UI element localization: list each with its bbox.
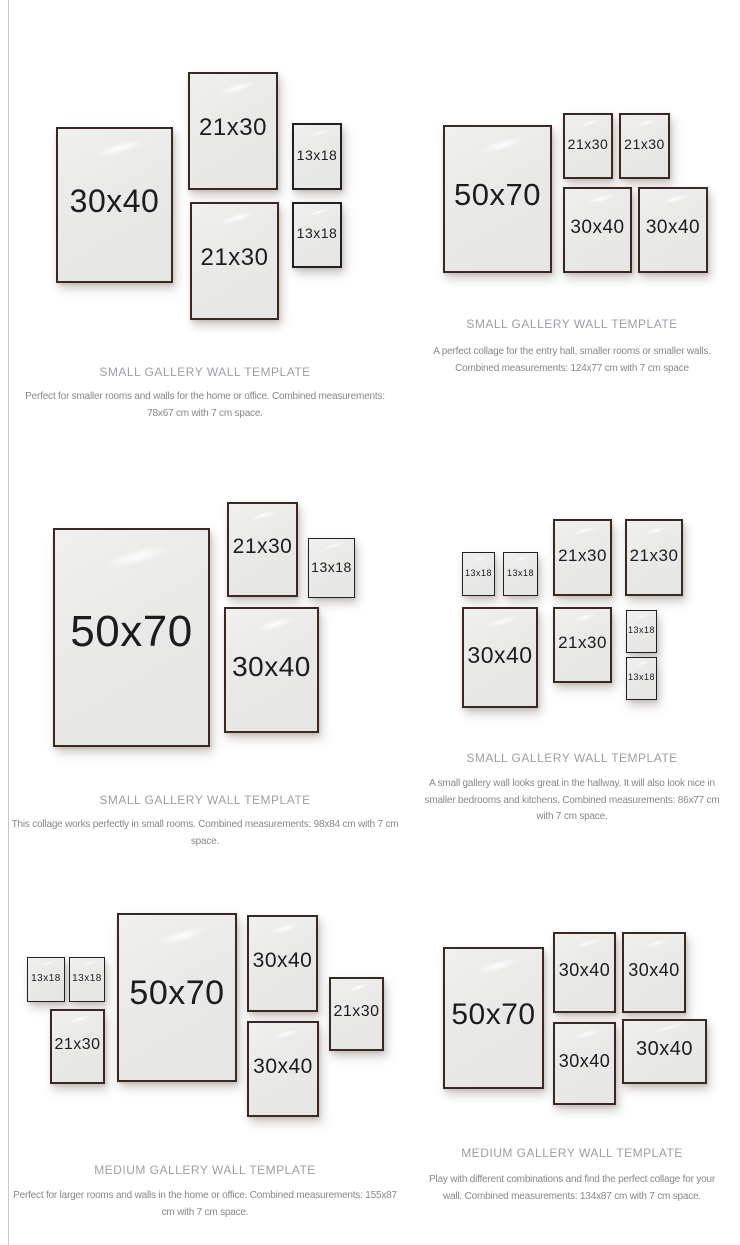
- picture-frame-13x18: 13x18: [503, 552, 538, 596]
- frame-size-label: 30x40: [559, 1051, 611, 1072]
- picture-frame-21x30: 21x30: [188, 72, 278, 190]
- frame-size-label: 13x18: [297, 147, 338, 163]
- frame-size-label: 21x30: [233, 535, 293, 559]
- picture-frame-30x40: 30x40: [553, 1022, 616, 1105]
- frame-size-label: 30x40: [628, 960, 680, 981]
- frame-size-label: 13x18: [507, 568, 534, 578]
- frame-size-label: 13x18: [31, 973, 61, 984]
- frame-size-label: 13x18: [465, 568, 492, 578]
- frame-size-label: 30x40: [467, 642, 532, 669]
- picture-frame-21x30: 21x30: [553, 607, 612, 683]
- frame-size-label: 21x30: [624, 136, 665, 152]
- frame-size-label: 30x40: [559, 960, 611, 981]
- picture-frame-30x40: 30x40: [247, 915, 318, 1012]
- description-line: This collage works perfectly in small ro…: [12, 819, 399, 830]
- picture-frame-30x40: 30x40: [638, 187, 708, 273]
- description-line: Play with different combinations and fin…: [429, 1174, 715, 1185]
- frame-size-label: 21x30: [558, 633, 607, 653]
- picture-frame-30x40: 30x40: [462, 607, 538, 708]
- picture-frame-21x30: 21x30: [50, 1009, 105, 1084]
- picture-frame-21x30: 21x30: [553, 519, 612, 596]
- frame-size-label: 30x40: [570, 217, 624, 239]
- picture-frame-50x70: 50x70: [443, 947, 544, 1089]
- picture-frame-30x40: 30x40: [224, 607, 319, 733]
- picture-frame-30x40: 30x40: [622, 1019, 707, 1084]
- description-line: smaller bedrooms and kitchens. Combined …: [425, 795, 720, 806]
- description-line: A small gallery wall looks great in the …: [429, 778, 715, 789]
- frame-size-label: 21x30: [201, 244, 269, 272]
- picture-frame-13x18: 13x18: [626, 657, 657, 700]
- section-description-medium-2: Play with different combinations and fin…: [352, 1172, 740, 1205]
- description-line: Perfect for smaller rooms and walls for …: [25, 391, 385, 402]
- frame-size-label: 30x40: [253, 949, 313, 973]
- frame-size-label: 30x40: [253, 1055, 313, 1079]
- frame-size-label: 21x30: [54, 1036, 100, 1054]
- section-description-small-1: Perfect for smaller rooms and walls for …: [0, 389, 450, 422]
- picture-frame-50x70: 50x70: [117, 913, 237, 1082]
- frame-size-label: 21x30: [333, 1003, 379, 1021]
- frame-size-label: 30x40: [70, 183, 160, 220]
- frame-size-label: 21x30: [568, 136, 609, 152]
- frame-size-label: 30x40: [232, 651, 311, 683]
- frame-size-label: 13x18: [311, 559, 352, 575]
- section-title-small-2: SMALL GALLERY WALL TEMPLATE: [352, 317, 740, 331]
- picture-frame-30x40: 30x40: [563, 187, 632, 273]
- frame-size-label: 50x70: [454, 177, 541, 213]
- frame-size-label: 13x18: [297, 225, 338, 241]
- picture-frame-50x70: 50x70: [53, 528, 210, 747]
- picture-frame-13x18: 13x18: [292, 123, 342, 190]
- picture-frame-21x30: 21x30: [227, 502, 298, 597]
- gallery-wall-templates-page: 30x4021x3013x1821x3013x1850x7021x3021x30…: [0, 0, 740, 1245]
- picture-frame-13x18: 13x18: [27, 957, 65, 1002]
- picture-frame-13x18: 13x18: [292, 202, 342, 268]
- picture-frame-21x30: 21x30: [563, 113, 613, 179]
- picture-frame-13x18: 13x18: [626, 610, 657, 653]
- description-line: wall. Combined measurements: 134x87 cm w…: [443, 1191, 701, 1202]
- description-line: space.: [191, 836, 219, 847]
- picture-frame-50x70: 50x70: [443, 125, 552, 273]
- frame-size-label: 50x70: [70, 607, 192, 657]
- description-line: Combined measurements: 124x77 cm with 7 …: [455, 363, 689, 374]
- section-description-small-2: A perfect collage for the entry hall, sm…: [352, 344, 740, 377]
- description-line: Perfect for larger rooms and walls in th…: [13, 1190, 397, 1201]
- frame-size-label: 21x30: [630, 546, 679, 566]
- frame-size-label: 50x70: [129, 974, 224, 1013]
- description-line: A perfect collage for the entry hall, sm…: [433, 346, 710, 357]
- section-title-small-4: SMALL GALLERY WALL TEMPLATE: [352, 751, 740, 765]
- picture-frame-21x30: 21x30: [625, 519, 683, 596]
- picture-frame-13x18: 13x18: [69, 957, 105, 1002]
- picture-frame-13x18: 13x18: [308, 538, 355, 598]
- page-left-border: [8, 0, 9, 1245]
- frame-size-label: 13x18: [628, 625, 655, 635]
- frame-size-label: 30x40: [636, 1038, 693, 1061]
- description-line: cm with 7 cm space.: [162, 1207, 249, 1218]
- picture-frame-13x18: 13x18: [462, 552, 495, 596]
- picture-frame-30x40: 30x40: [553, 932, 616, 1013]
- frame-size-label: 13x18: [628, 672, 655, 682]
- picture-frame-30x40: 30x40: [247, 1021, 319, 1117]
- picture-frame-21x30: 21x30: [329, 977, 384, 1051]
- frame-size-label: 50x70: [451, 998, 535, 1032]
- frame-size-label: 30x40: [646, 217, 700, 239]
- section-title-medium-2: MEDIUM GALLERY WALL TEMPLATE: [352, 1146, 740, 1160]
- frame-size-label: 21x30: [558, 546, 607, 566]
- description-line: with 7 cm space.: [536, 811, 607, 822]
- picture-frame-21x30: 21x30: [190, 202, 279, 320]
- frame-size-label: 13x18: [72, 973, 102, 984]
- section-description-small-4: A small gallery wall looks great in the …: [352, 776, 740, 826]
- picture-frame-30x40: 30x40: [622, 932, 686, 1013]
- picture-frame-30x40: 30x40: [56, 127, 173, 283]
- description-line: 78x67 cm with 7 cm space.: [147, 408, 263, 419]
- frame-size-label: 21x30: [199, 114, 267, 142]
- picture-frame-21x30: 21x30: [619, 113, 670, 179]
